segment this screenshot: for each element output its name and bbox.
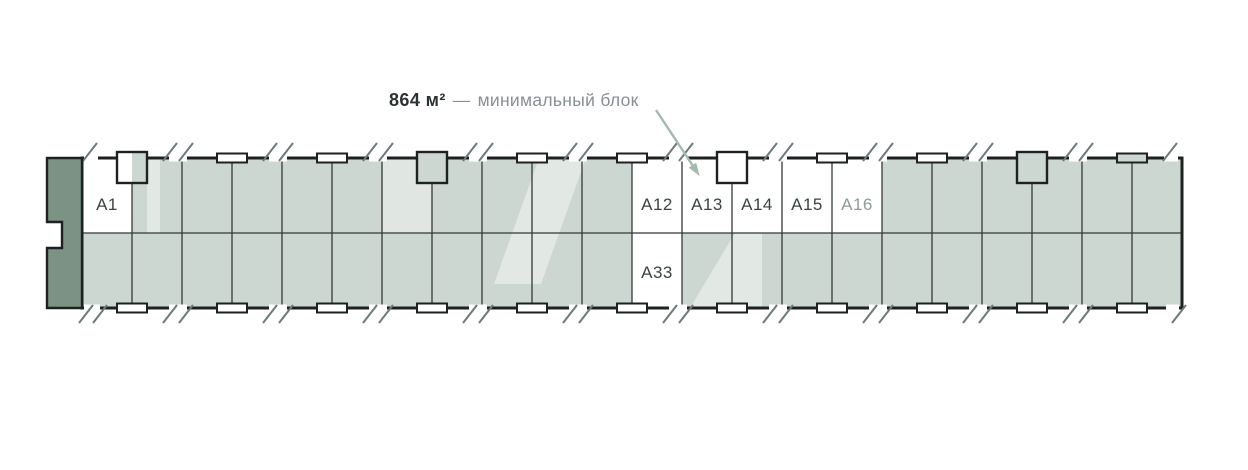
door-marker — [517, 154, 547, 163]
door-marker — [617, 154, 647, 163]
door-marker — [717, 304, 747, 313]
door-marker — [217, 154, 247, 163]
unit-label-A33: A33 — [641, 263, 673, 282]
unit-label-A13: A13 — [691, 195, 723, 214]
gate-marker-fill — [717, 152, 732, 183]
unit-label-A14: A14 — [741, 195, 773, 214]
wall-gap — [1166, 305, 1179, 312]
floor-plan: A1A12A13A14A15A16A33 — [0, 0, 1248, 470]
door-marker — [1117, 154, 1147, 163]
gate-marker-fill — [132, 152, 147, 183]
gate-marker-fill — [1017, 152, 1032, 183]
floor-plan-page: 864 м² — минимальный блок A1A12A13A14A15… — [0, 0, 1248, 470]
door-marker — [317, 304, 347, 313]
gate-marker-fill — [732, 152, 747, 183]
door-marker — [217, 304, 247, 313]
door-marker — [317, 154, 347, 163]
gate-marker-fill — [417, 152, 432, 183]
door-marker — [917, 154, 947, 163]
unit-label-A15: A15 — [791, 195, 823, 214]
door-marker — [817, 304, 847, 313]
gate-marker-fill — [117, 152, 132, 183]
unit-label-A16: A16 — [841, 195, 873, 214]
end-cap-block — [47, 158, 82, 308]
door-marker — [117, 304, 147, 313]
gate-marker-fill — [1032, 152, 1047, 183]
gate-marker-fill — [432, 152, 447, 183]
door-marker — [917, 304, 947, 313]
door-marker — [1117, 304, 1147, 313]
door-marker — [1017, 304, 1047, 313]
door-marker — [517, 304, 547, 313]
unit-label-A12: A12 — [641, 195, 673, 214]
door-marker — [417, 304, 447, 313]
unit-label-A1: A1 — [96, 195, 118, 214]
door-marker — [617, 304, 647, 313]
door-marker — [817, 154, 847, 163]
glass-sheen — [147, 158, 160, 233]
